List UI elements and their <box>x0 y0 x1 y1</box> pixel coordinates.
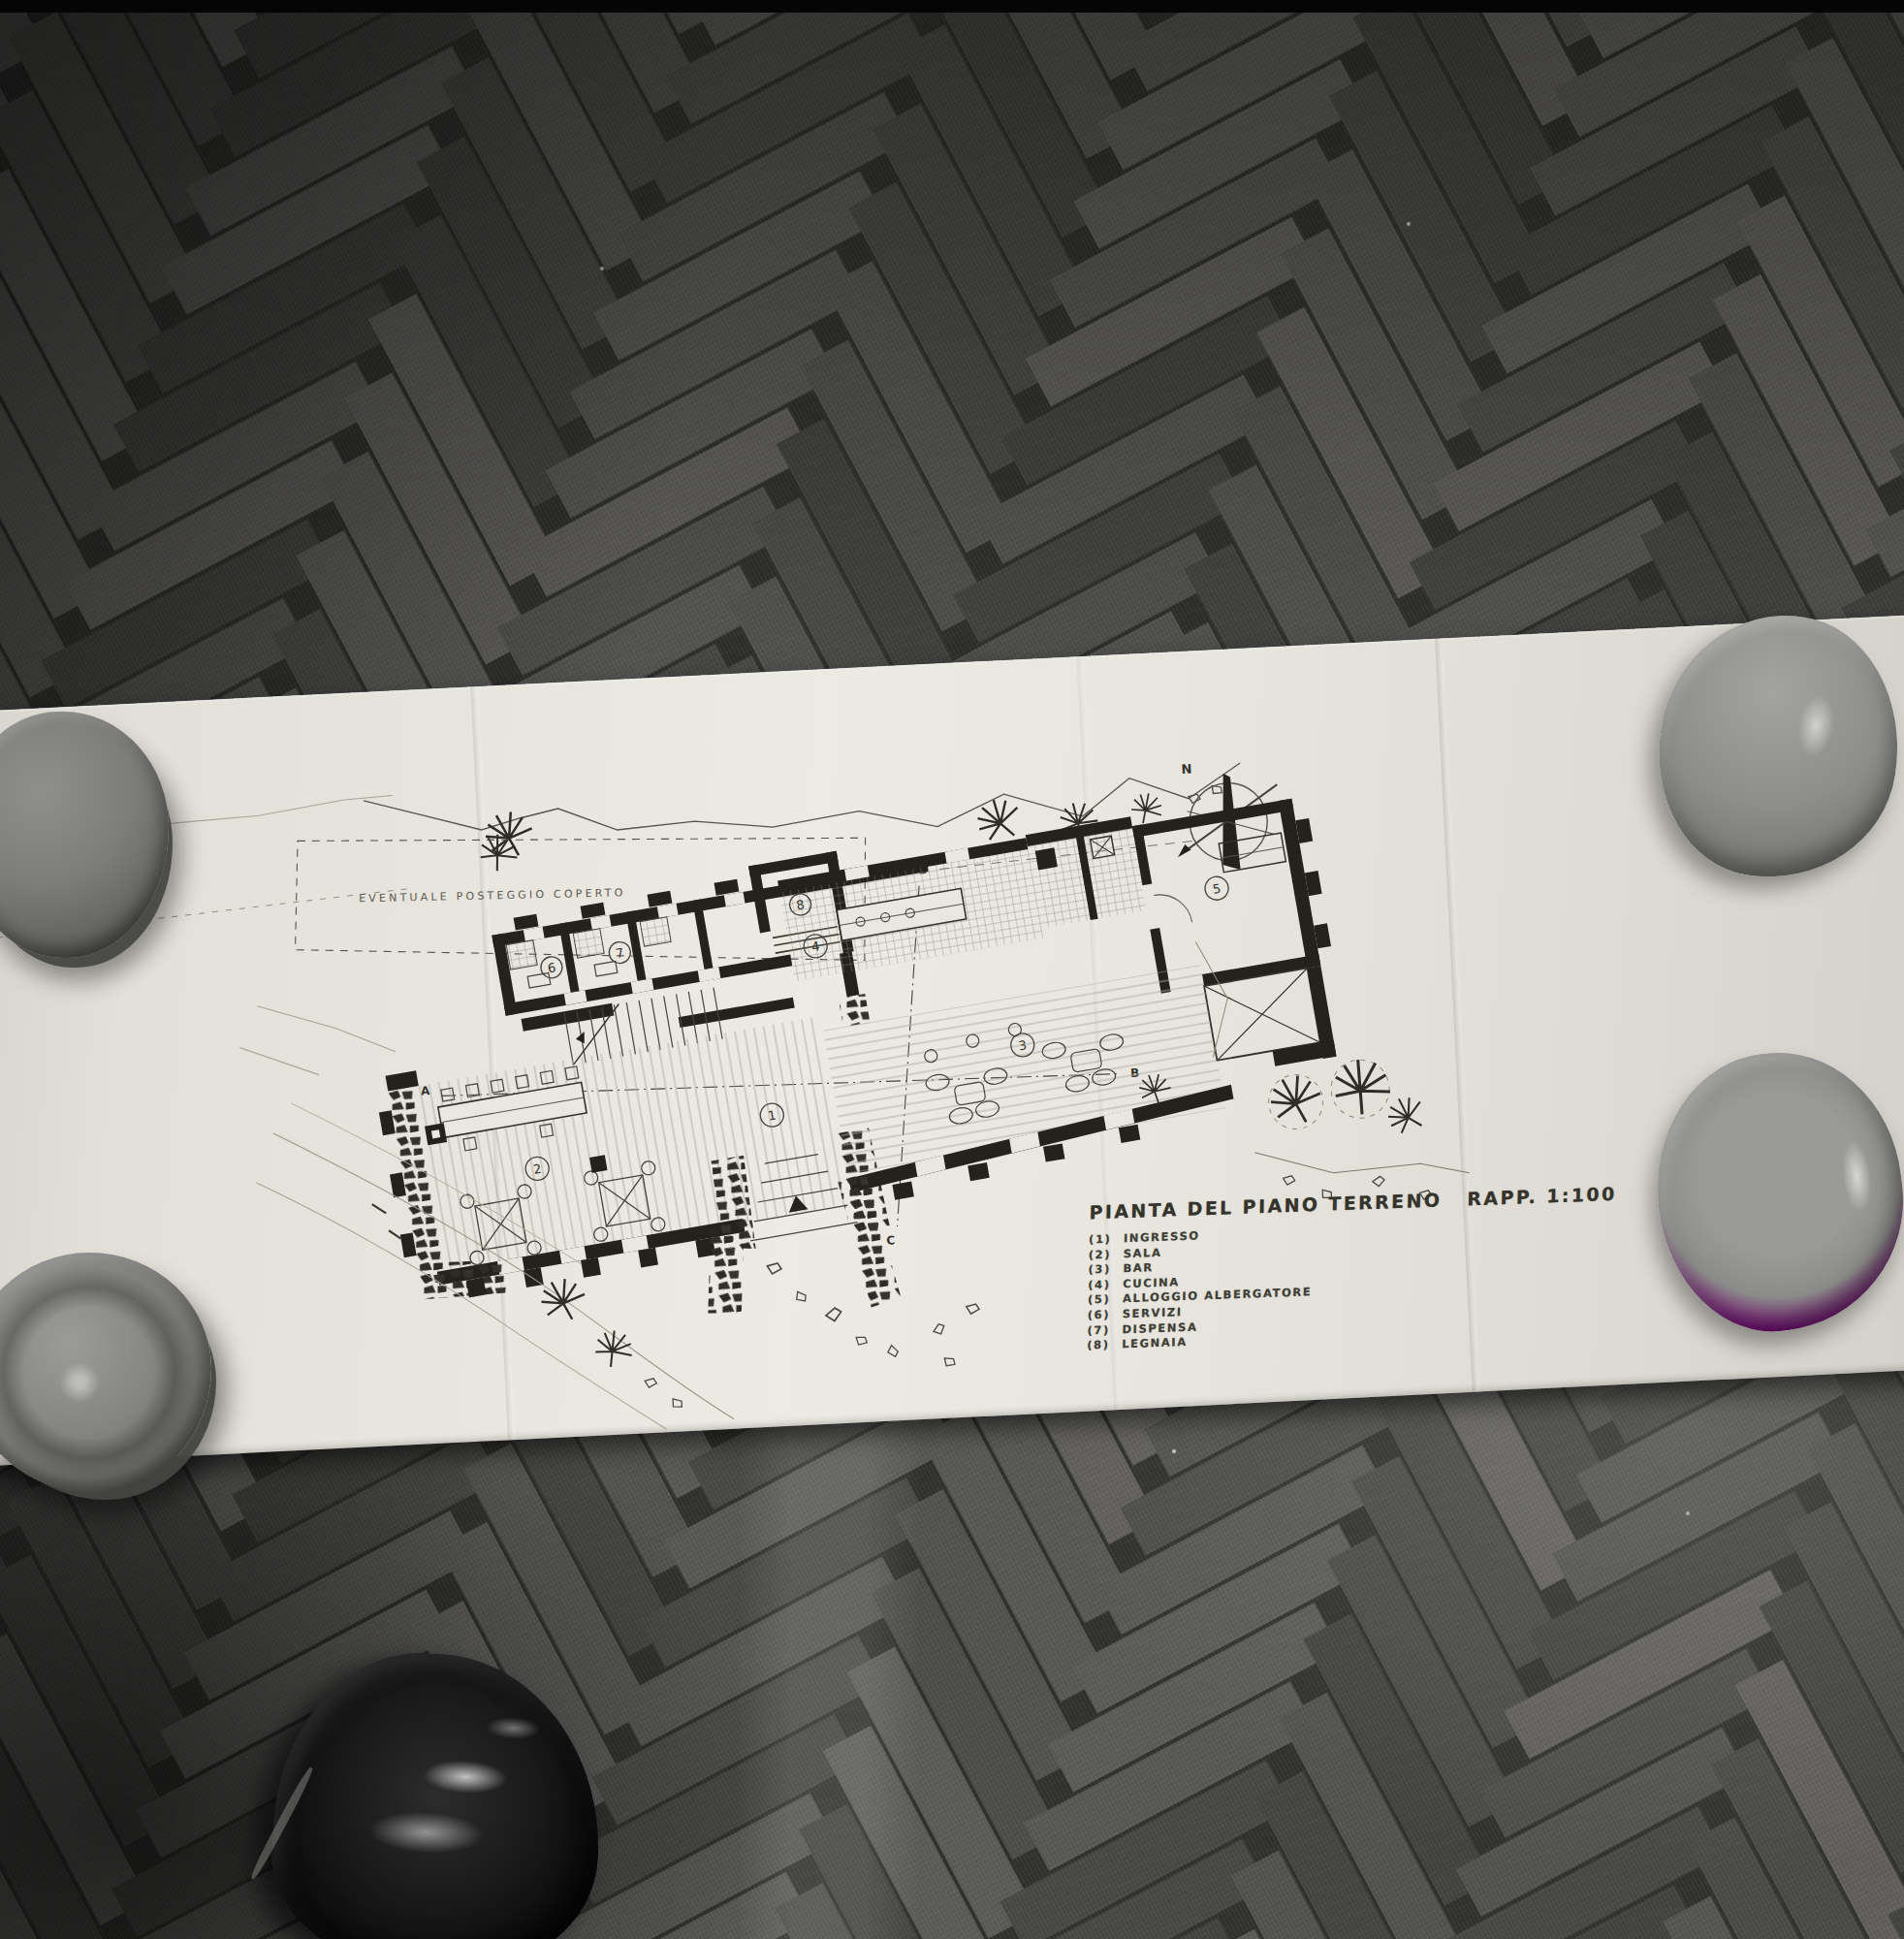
room-number: 6 <box>547 960 557 975</box>
room-sala <box>373 1001 852 1309</box>
plan-legend: 1INGRESSO 2SALA 3BAR 4CUCINA 5ALLOGGIO A… <box>1087 1213 1632 1353</box>
architectural-drawing-sheet: N EVENTUALE POSTEGGIO COPERTO A B D C <box>0 612 1904 1467</box>
room-bar <box>823 964 1241 1208</box>
photograph: N EVENTUALE POSTEGGIO COPERTO A B D C <box>0 0 1904 1939</box>
bath-cells <box>1026 816 1147 928</box>
section-marker-c: C <box>886 1233 896 1247</box>
plan-scale-label: RAPP. 1:100 <box>1467 1183 1617 1210</box>
light-plank-strip <box>737 1338 921 1939</box>
parking-note: EVENTUALE POSTEGGIO COPERTO <box>359 886 626 905</box>
plan-title-block: PIANTA DEL PIANO TERRENORAPP. 1:100 1ING… <box>1087 1182 1632 1353</box>
room-number: 5 <box>1212 881 1222 897</box>
compass-north-label: N <box>1181 761 1192 777</box>
store-room <box>1204 966 1336 1076</box>
floor-plan-drawing: N EVENTUALE POSTEGGIO COPERTO A B D C <box>0 612 1904 1467</box>
film-frame-edge <box>0 0 1904 13</box>
room-number: 7 <box>615 945 625 961</box>
